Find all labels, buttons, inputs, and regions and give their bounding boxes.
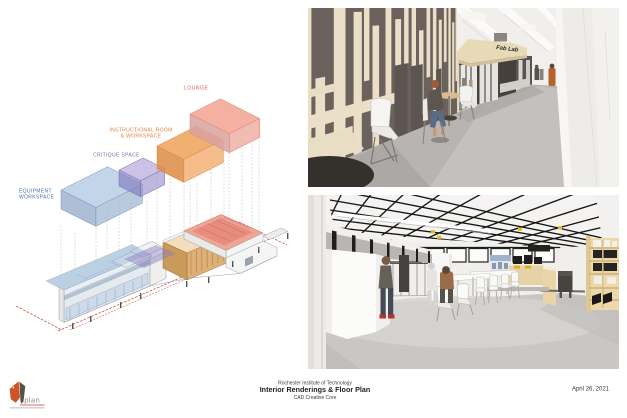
svg-text:LOUNGE: LOUNGE [184,86,209,92]
svg-text:Interior Renderings & Floor Pl: Interior Renderings & Floor Plan [260,385,371,394]
svg-text:CRITIQUE SPACE: CRITIQUE SPACE [93,153,140,159]
svg-text:WORKSPACE: WORKSPACE [19,195,55,201]
svg-text:plan: plan [24,396,40,405]
svg-text:April 26, 2021: April 26, 2021 [572,387,610,393]
svg-text:CAD Creative Core: CAD Creative Core [294,395,337,401]
svg-text:& WORKSPACE: & WORKSPACE [121,134,162,140]
